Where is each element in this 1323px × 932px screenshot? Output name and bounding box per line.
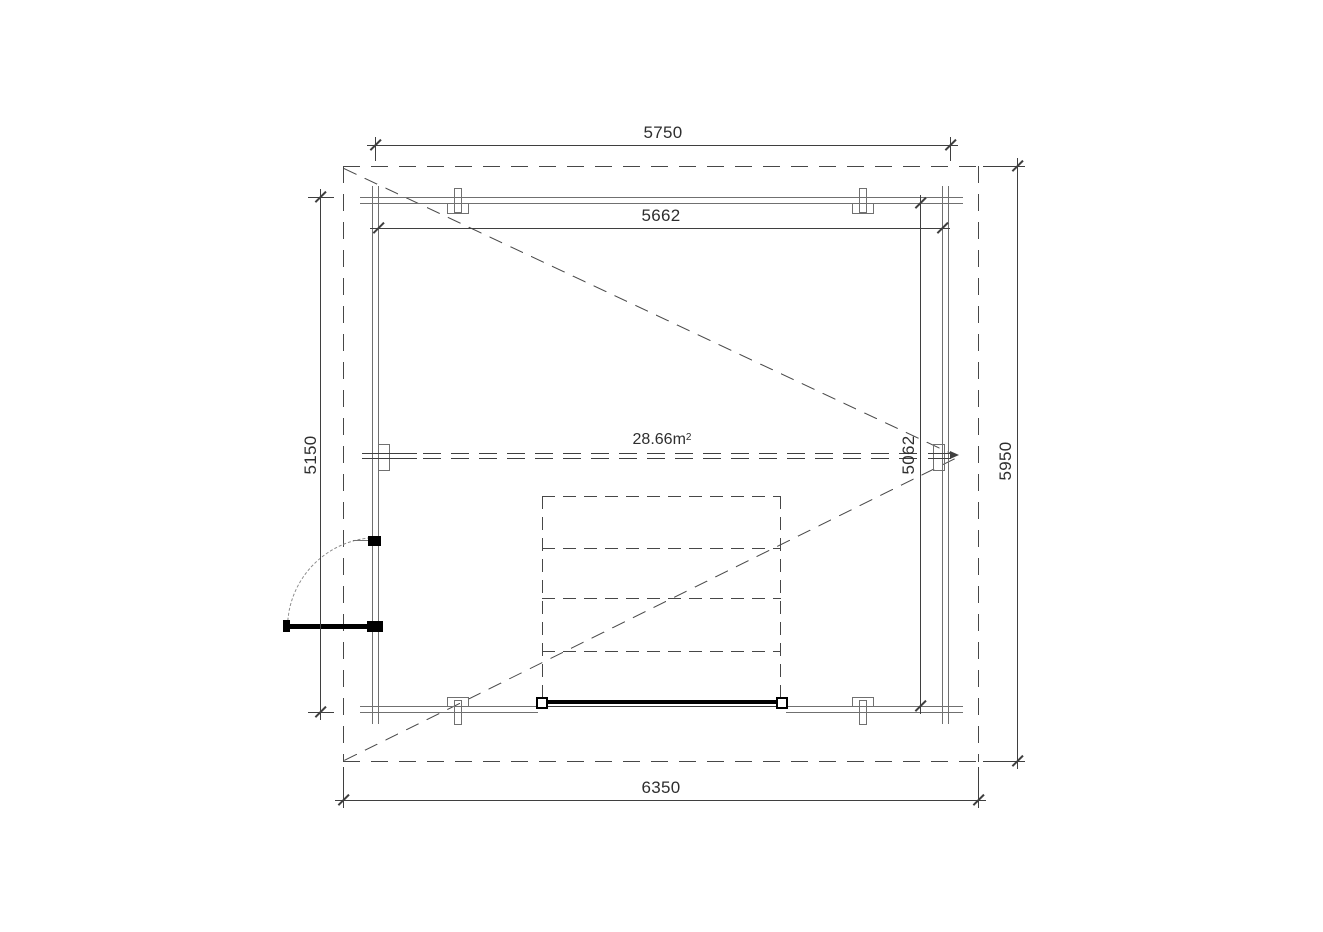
wall-bottom-beam-left (360, 706, 538, 713)
purlin-end-left (362, 453, 417, 459)
extension-line (375, 137, 376, 161)
floor-plan: 28.66m2 5750 5662 5150 (0, 0, 1323, 932)
window-frame-right (776, 697, 788, 709)
roof-outline-right (978, 166, 979, 762)
dimension-label: 5662 (626, 207, 696, 225)
area-label: 28.66m2 (592, 429, 732, 447)
extension-line (983, 166, 1025, 167)
purlin-dashed-lower (423, 458, 926, 459)
door-leaf-endcap (283, 620, 290, 632)
area-value: 28.66m (633, 431, 686, 448)
door-hinge-top (368, 536, 381, 546)
wall-bottom-beam-right (786, 706, 963, 713)
area-sup: 2 (686, 432, 692, 443)
purlin-dashed-upper (423, 453, 926, 454)
window-glazing-bar (548, 700, 776, 704)
extension-line (983, 761, 1025, 762)
dimension-label: 5950 (997, 426, 1015, 496)
door-swing-arc (287, 537, 378, 628)
dimension-label: 6350 (626, 779, 696, 797)
joint-post-top-left (454, 188, 462, 213)
dimension-line (1017, 158, 1018, 769)
extension-line (950, 137, 951, 161)
dimension-label: 5150 (302, 420, 320, 490)
loft-shelf-line-3 (542, 651, 781, 652)
joint-post-top-right (859, 188, 867, 213)
joint-post-bottom-left (454, 700, 462, 725)
dimension-line (320, 189, 321, 720)
dimension-line (335, 800, 986, 801)
dimension-label: 5062 (900, 420, 918, 490)
dimension-label: 5750 (628, 124, 698, 142)
roof-outline-left (343, 166, 344, 761)
extension-line (343, 767, 344, 808)
extension-line (978, 767, 979, 808)
loft-shelf-line-2 (542, 598, 781, 599)
roof-outline-top (343, 166, 978, 167)
dimension-line (370, 228, 950, 229)
door-leaf (286, 624, 378, 629)
dimension-line (920, 195, 921, 714)
loft-outline-top (542, 496, 781, 497)
window-glazing-line (548, 706, 776, 707)
window-frame-left (536, 697, 548, 709)
loft-shelf-line-1 (542, 548, 781, 549)
joint-post-bottom-right (859, 700, 867, 725)
purlin-end-right (928, 453, 951, 459)
slope-arrow-icon (950, 451, 959, 459)
roof-outline-bottom (343, 761, 978, 762)
dimension-line (367, 145, 958, 146)
door-frame-tick (353, 540, 368, 541)
